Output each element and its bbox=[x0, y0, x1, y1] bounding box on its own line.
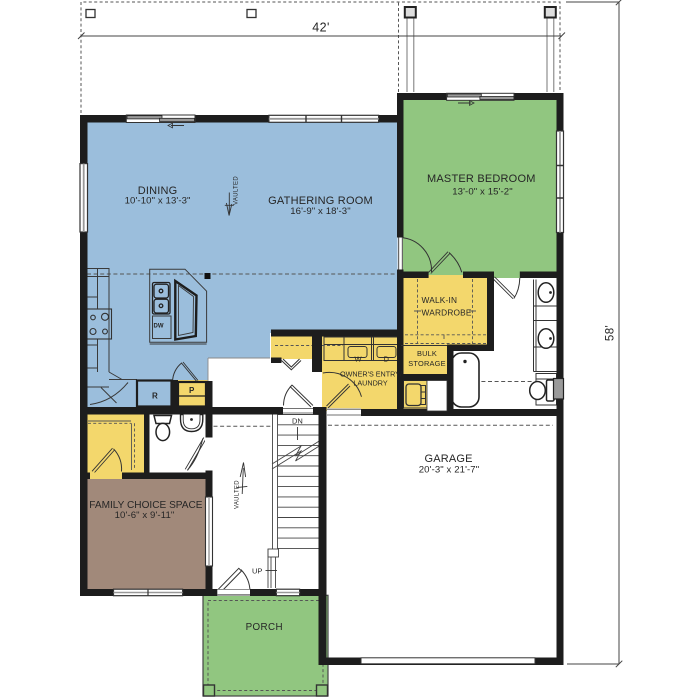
svg-text:VAULTED: VAULTED bbox=[234, 480, 240, 509]
svg-text:OWNER'S ENTRY/: OWNER'S ENTRY/ bbox=[340, 370, 402, 379]
svg-text:WARDROBE: WARDROBE bbox=[422, 307, 472, 317]
svg-text:PORCH: PORCH bbox=[246, 622, 283, 633]
svg-text:42': 42' bbox=[312, 21, 330, 35]
svg-text:13'-0" x 15'-2": 13'-0" x 15'-2" bbox=[452, 187, 513, 198]
svg-text:58': 58' bbox=[605, 325, 617, 341]
svg-text:WALK-IN: WALK-IN bbox=[422, 295, 458, 305]
svg-text:LAUNDRY: LAUNDRY bbox=[353, 379, 387, 388]
svg-text:P: P bbox=[189, 386, 195, 395]
svg-text:STORAGE: STORAGE bbox=[408, 359, 445, 368]
svg-text:10'-10" x 13'-3": 10'-10" x 13'-3" bbox=[125, 196, 191, 207]
svg-text:GARAGE: GARAGE bbox=[424, 453, 472, 465]
svg-text:BULK: BULK bbox=[417, 349, 437, 358]
svg-text:MASTER BEDROOM: MASTER BEDROOM bbox=[427, 173, 536, 185]
svg-text:W: W bbox=[355, 355, 363, 364]
svg-text:R: R bbox=[152, 392, 158, 401]
svg-text:DN: DN bbox=[292, 417, 303, 426]
svg-text:D: D bbox=[384, 355, 390, 364]
svg-text:16'-9" x 18'-3": 16'-9" x 18'-3" bbox=[290, 206, 351, 217]
svg-text:VAULTED: VAULTED bbox=[233, 176, 239, 205]
svg-text:10'-6" x 9'-11": 10'-6" x 9'-11" bbox=[115, 510, 175, 521]
svg-text:DW: DW bbox=[154, 324, 164, 330]
svg-text:20'-3" x 21'-7": 20'-3" x 21'-7" bbox=[419, 464, 480, 475]
svg-text:UP: UP bbox=[252, 567, 262, 576]
